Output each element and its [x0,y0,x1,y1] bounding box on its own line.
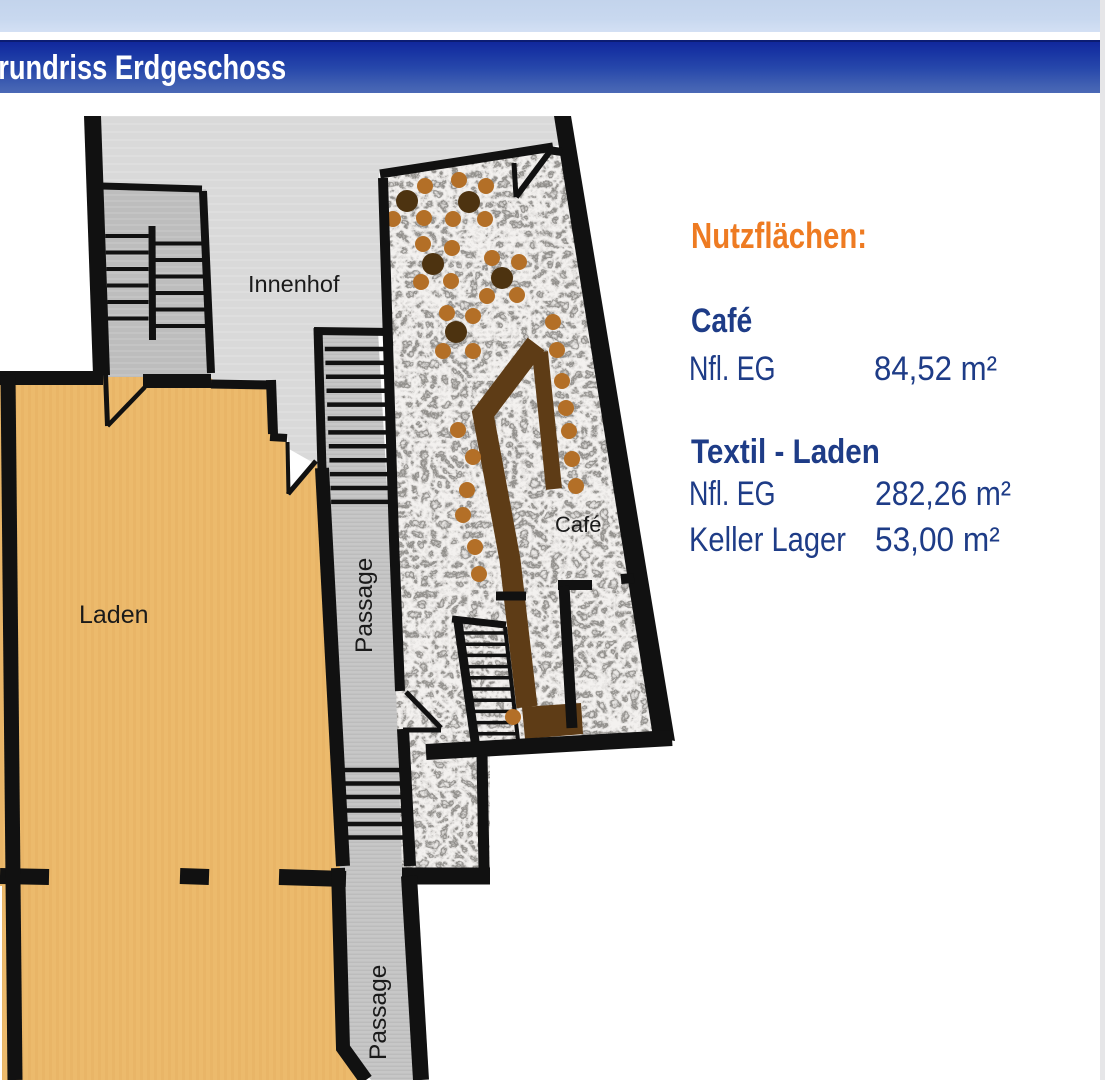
svg-text:Passage: Passage [351,558,378,653]
svg-text:Passage: Passage [365,965,392,1060]
svg-text:Café: Café [555,512,601,537]
svg-text:Laden: Laden [79,601,149,629]
svg-text:Innenhof: Innenhof [248,271,340,297]
